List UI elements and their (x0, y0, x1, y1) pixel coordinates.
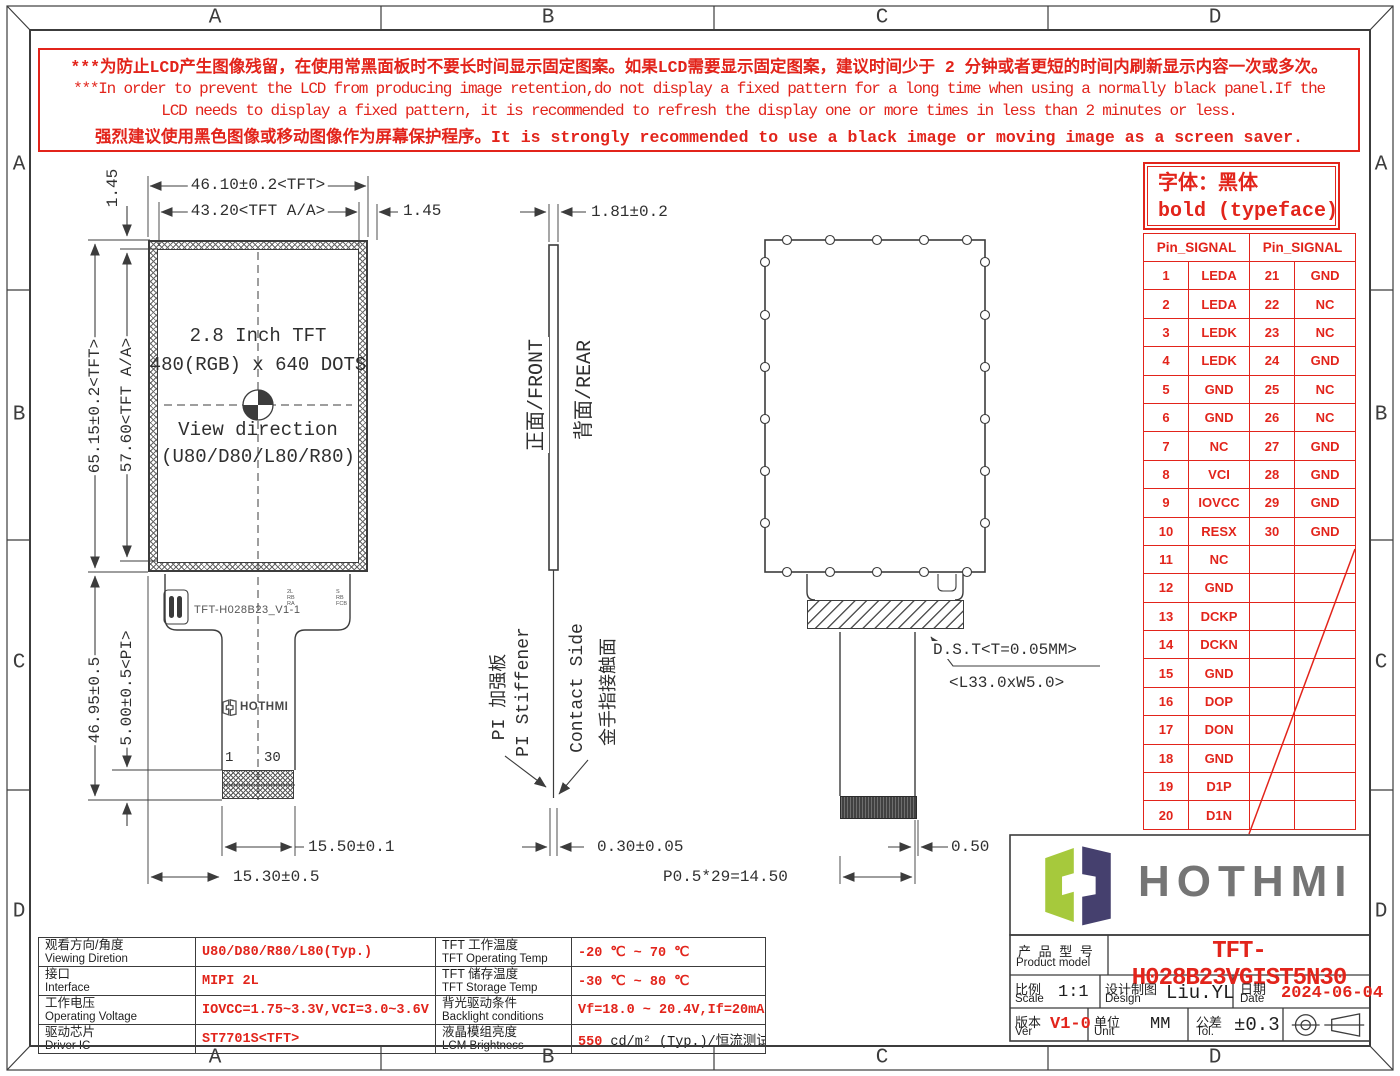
pin-number-right (1250, 574, 1295, 602)
front-view-panel (148, 240, 368, 572)
typeface-note-box: 字体：黑体 bold (typeface) (1143, 162, 1340, 230)
pin-signal-right (1295, 687, 1356, 715)
pin-number-left: 10 (1144, 517, 1189, 545)
pin-number-right (1250, 716, 1295, 744)
grid-label-right-c: C (1375, 652, 1388, 675)
pin-number-right: 28 (1250, 460, 1295, 488)
pin-number-left: 6 (1144, 403, 1189, 431)
spec-label-1: 接口 Interface (39, 967, 196, 996)
pin-table-row: 7 NC 27 GND (1144, 432, 1356, 460)
grid-label-top-d: D (1209, 7, 1222, 30)
pin-signal-left: GND (1189, 403, 1250, 431)
image-retention-warning-box: ***为防止LCD产生图像残留，在使用常黑面板时不要长时间显示固定图案。如果LC… (38, 48, 1360, 152)
pin-signal-left: GND (1189, 744, 1250, 772)
pin-number-left: 20 (1144, 801, 1189, 829)
pin-number-right: 27 (1250, 432, 1295, 460)
spec-label-1: 工作电压 Operating Voltage (39, 996, 196, 1025)
pin-table-row: 19 D1P (1144, 773, 1356, 801)
mini-hothmi-icon (222, 699, 237, 716)
pin-number-left: 13 (1144, 602, 1189, 630)
pin-table-row: 10 RESX 30 GND (1144, 517, 1356, 545)
pin-table-row: 9 IOVCC 29 GND (1144, 489, 1356, 517)
pin-table-row: 6 GND 26 NC (1144, 403, 1356, 431)
dim-fpc-thickness: 0.30±0.05 (594, 838, 686, 856)
typeface-note-inner: 字体：黑体 bold (typeface) (1147, 166, 1336, 226)
dim-height-tft: 65.15±0.2<TFT> (86, 337, 104, 475)
contact-side-label-en: Contact Side (568, 621, 588, 755)
pin-signal-right (1295, 659, 1356, 687)
rear-stiffener-hatched (807, 600, 964, 629)
pin-table-row: 16 DOP (1144, 687, 1356, 715)
dim-pin-pitch: P0.5*29=14.50 (660, 868, 791, 886)
front-view-active-area (157, 249, 359, 563)
pin-number-left: 9 (1144, 489, 1189, 517)
grid-label-left-d: D (13, 901, 26, 924)
pin-signal-right: NC (1295, 375, 1356, 403)
dim-connector-offset: 15.30±0.5 (230, 868, 322, 886)
spec-label-1-en: Operating Voltage (45, 1011, 189, 1024)
pin-signal-left: LEDA (1189, 262, 1250, 290)
pin-signal-left: NC (1189, 432, 1250, 460)
spec-label-2-en: TFT Storage Temp (442, 982, 565, 995)
pin-table-row: 14 DCKN (1144, 631, 1356, 659)
pin-number-left: 3 (1144, 318, 1189, 346)
pin-table-header-right: Pin_SIGNAL (1250, 234, 1356, 262)
pin-signal-right (1295, 801, 1356, 829)
pin-table-row: 15 GND (1144, 659, 1356, 687)
grid-label-left-b: B (13, 404, 26, 427)
dim-pi-stiffener: 5.00±0.5<PI> (118, 628, 136, 747)
version-value: V1-0 (1050, 1015, 1091, 1034)
spec-value-1: U80/D80/R80/L80(Typ.) (196, 938, 436, 967)
dim-thickness: 1.81±0.2 (588, 203, 671, 221)
pin-number-right: 26 (1250, 403, 1295, 431)
side-rear-label: 背面/REAR (567, 338, 597, 442)
tolerance-label-en: Tol. (1196, 1026, 1214, 1038)
pin-number-left: 14 (1144, 631, 1189, 659)
spec-label-1-en: Interface (45, 982, 189, 995)
spec-value-2: -30 ℃ ~ 80 ℃ (572, 967, 766, 996)
spec-label-1-cn: 驱动芯片 (45, 1026, 189, 1040)
typeface-note-en: bold (typeface) (1158, 198, 1325, 225)
pin-table-row: 1 LEDA 21 GND (1144, 262, 1356, 290)
dim-margin-right: 1.45 (400, 202, 444, 220)
pin-signal-right: GND (1295, 262, 1356, 290)
design-label-en: Design (1105, 993, 1141, 1005)
pin-signal-left: LEDK (1189, 318, 1250, 346)
spec-label-1-en: Viewing Diretion (45, 953, 189, 966)
panel-resolution-label: 480(RGB) x 640 DOTS (148, 354, 368, 376)
stiffener-size-label: <L33.0xW5.0> (946, 674, 1067, 692)
pin-number-right: 30 (1250, 517, 1295, 545)
pin-signal-right (1295, 716, 1356, 744)
grid-label-bottom-c: C (876, 1047, 889, 1070)
grid-label-top-a: A (209, 7, 222, 30)
warning-line-en-2: LCD needs to display a fixed pattern, it… (161, 102, 1236, 120)
pin-signal-table: Pin_SIGNAL Pin_SIGNAL 1 LEDA 21 GND 2 LE… (1143, 233, 1356, 830)
pin-signal-right: NC (1295, 403, 1356, 431)
pin-number-right (1250, 659, 1295, 687)
pin-signal-left: DCKN (1189, 631, 1250, 659)
pin-signal-right (1295, 773, 1356, 801)
pin-number-right (1250, 801, 1295, 829)
pin-table-row: 12 GND (1144, 574, 1356, 602)
hothmi-logo-icon (1040, 843, 1116, 927)
spec-row: 工作电压 Operating Voltage IOVCC=1.75~3.3V,V… (39, 996, 766, 1025)
pin-number-left: 7 (1144, 432, 1189, 460)
spec-label-2: TFT 工作温度 TFT Operating Temp (436, 938, 572, 967)
grid-label-right-a: A (1375, 154, 1388, 177)
spec-label-1-cn: 观看方向/角度 (45, 939, 189, 953)
dst-label: D.S.T<T=0.05MM> (930, 641, 1080, 659)
warning-line-cn-2: 强烈建议使用黑色图像或移动图像作为屏幕保护程序。It is strongly r… (95, 123, 1303, 147)
spec-label-2-en: TFT Operating Temp (442, 953, 565, 966)
view-direction-values: (U80/D80/L80/R80) (148, 446, 368, 468)
pin-signal-left: GND (1189, 574, 1250, 602)
pin-signal-left: DON (1189, 716, 1250, 744)
pin-number-right (1250, 545, 1295, 573)
spec-label-2-cn: TFT 储存温度 (442, 968, 565, 982)
pin-number-right (1250, 631, 1295, 659)
grid-label-bottom-a: A (209, 1047, 222, 1070)
pin-number-right: 22 (1250, 290, 1295, 318)
pin-number-right (1250, 744, 1295, 772)
pin-number-left: 11 (1144, 545, 1189, 573)
spec-label-2: TFT 储存温度 TFT Storage Temp (436, 967, 572, 996)
grid-label-bottom-d: D (1209, 1047, 1222, 1070)
hothmi-logo-block: HOTHMI (1010, 835, 1370, 935)
spec-value-1: MIPI 2L (196, 967, 436, 996)
engineering-drawing-sheet: A B C D A B C D A B C D A B C D ***为防止LC… (0, 0, 1400, 1076)
pin-signal-right (1295, 744, 1356, 772)
view-direction-label: View direction (148, 419, 368, 441)
pin-number-right: 25 (1250, 375, 1295, 403)
pin-table-row: 17 DON (1144, 716, 1356, 744)
spec-row: 驱动芯片 Driver IC ST7701S<TFT> 液晶模组亮度 LCM B… (39, 1025, 766, 1054)
grid-label-top-c: C (876, 7, 889, 30)
pin-number-left: 5 (1144, 375, 1189, 403)
spec-label-2: 背光驱动条件 Backlight conditions (436, 996, 572, 1025)
pin-number-left: 12 (1144, 574, 1189, 602)
pin-table-row: 8 VCI 28 GND (1144, 460, 1356, 488)
pin-signal-left: GND (1189, 659, 1250, 687)
pin-number-right: 29 (1250, 489, 1295, 517)
spec-label-2-cn: 背光驱动条件 (442, 997, 565, 1011)
pin-table-row: 20 D1N (1144, 801, 1356, 829)
side-view-backlight-edge (550, 548, 556, 566)
pin-signal-right: GND (1295, 460, 1356, 488)
spec-value-1: IOVCC=1.75~3.3V,VCI=3.0~3.6V (196, 996, 436, 1025)
pin-signal-left: LEDA (1189, 290, 1250, 318)
spec-label-2-cn: 液晶模组亮度 (442, 1026, 565, 1040)
spec-row: 观看方向/角度 Viewing Diretion U80/D80/R80/L80… (39, 938, 766, 967)
pin-signal-right: GND (1295, 489, 1356, 517)
pin-number-right (1250, 602, 1295, 630)
pin-signal-left: IOVCC (1189, 489, 1250, 517)
pin-table-row: 3 LEDK 23 NC (1144, 318, 1356, 346)
pin-signal-right (1295, 631, 1356, 659)
grid-label-left-a: A (13, 154, 26, 177)
pin-signal-left: D1N (1189, 801, 1250, 829)
fpc-tiny-mark-1: 2L RB RA (287, 589, 295, 607)
dim-connector-width: 15.50±0.1 (305, 838, 397, 856)
unit-value: MM (1150, 1015, 1170, 1034)
side-front-label: 正面/FRONT (519, 337, 549, 453)
version-label-en: Ver (1015, 1026, 1032, 1038)
panel-size-label: 2.8 Inch TFT (148, 325, 368, 347)
fpc-mini-logo: HOTHMI (222, 694, 300, 720)
pin-signal-right: NC (1295, 290, 1356, 318)
spec-label-2-cn: TFT 工作温度 (442, 939, 565, 953)
spec-label-1: 观看方向/角度 Viewing Diretion (39, 938, 196, 967)
pin-number-right (1250, 773, 1295, 801)
spec-value-2: 550 cd/m² (Typ.)/恒流测试 (572, 1025, 766, 1054)
tolerance-value: ±0.3 (1234, 1014, 1280, 1036)
fpc-pin30-label: 30 (264, 750, 281, 766)
designer-value: Liu.YL (1166, 982, 1234, 1004)
dim-edge-gap: 0.50 (948, 838, 992, 856)
pin-number-right: 23 (1250, 318, 1295, 346)
fpc-pin1-label: 1 (225, 750, 233, 766)
spec-label-1-en: Driver IC (45, 1040, 189, 1053)
pi-stiffener-label-en: PI Stiffener (514, 625, 534, 759)
pin-number-right: 21 (1250, 262, 1295, 290)
pin-table-row: 11 NC (1144, 545, 1356, 573)
pin-table-row: 13 DCKP (1144, 602, 1356, 630)
grid-label-right-d: D (1375, 901, 1388, 924)
spec-value-2: Vf=18.0 ~ 20.4V,If=20mA (572, 996, 766, 1025)
spec-label-1: 驱动芯片 Driver IC (39, 1025, 196, 1054)
hothmi-logo-text: HOTHMI (1138, 857, 1354, 907)
pin-number-left: 1 (1144, 262, 1189, 290)
fpc-tiny-mark-2: S RB FCB (336, 589, 347, 607)
pin-signal-right (1295, 602, 1356, 630)
pin-number-left: 17 (1144, 716, 1189, 744)
rear-solder-notches (761, 236, 990, 577)
pin-signal-right: NC (1295, 318, 1356, 346)
pin-signal-right (1295, 545, 1356, 573)
mini-hothmi-text: HOTHMI (240, 701, 288, 713)
spec-label-1-cn: 接口 (45, 968, 189, 982)
fpc-gold-finger-connector (222, 770, 294, 799)
pin-table-header-row: Pin_SIGNAL Pin_SIGNAL (1144, 234, 1356, 262)
pin-signal-left: VCI (1189, 460, 1250, 488)
pin-table-row: 2 LEDA 22 NC (1144, 290, 1356, 318)
typeface-note-cn: 字体：黑体 (1158, 171, 1325, 198)
pin-signal-left: DOP (1189, 687, 1250, 715)
unit-label-en: Unit (1094, 1026, 1114, 1038)
scale-label-en: Scale (1015, 993, 1044, 1005)
rear-gold-finger-connector (840, 796, 917, 819)
pin-signal-left: NC (1189, 545, 1250, 573)
grid-label-bottom-b: B (542, 1047, 555, 1070)
projection-symbol (1290, 1012, 1366, 1038)
date-value: 2024-06-04 (1281, 984, 1383, 1003)
pin-signal-right: GND (1295, 347, 1356, 375)
pin-signal-right: GND (1295, 517, 1356, 545)
spec-value-1: ST7701S<TFT> (196, 1025, 436, 1054)
pin-table-row: 4 LEDK 24 GND (1144, 347, 1356, 375)
pin-signal-right: GND (1295, 432, 1356, 460)
pin-signal-left: LEDK (1189, 347, 1250, 375)
pin-signal-left: DCKP (1189, 602, 1250, 630)
pin-table-row: 18 GND (1144, 744, 1356, 772)
product-model-label-en: Product model (1016, 957, 1090, 969)
pin-signal-right (1295, 574, 1356, 602)
spec-row: 接口 Interface MIPI 2L TFT 储存温度 TFT Storag… (39, 967, 766, 996)
pin-signal-left: GND (1189, 375, 1250, 403)
pin-signal-left: RESX (1189, 517, 1250, 545)
pi-stiffener-label-cn: PI 加强板 (484, 652, 510, 742)
spec-label-2-en: Backlight conditions (442, 1011, 565, 1024)
pin-table-row: 5 GND 25 NC (1144, 375, 1356, 403)
spec-table: 观看方向/角度 Viewing Diretion U80/D80/R80/L80… (38, 937, 766, 1054)
warning-line-cn-1: ***为防止LCD产生图像残留，在使用常黑面板时不要长时间显示固定图案。如果LC… (70, 53, 1327, 77)
pin-table-header-left: Pin_SIGNAL (1144, 234, 1250, 262)
fpc-model-label: TFT-H028B23_V1-1 (194, 604, 300, 616)
dim-width-tft: 46.10±0.2<TFT> (188, 176, 328, 194)
warning-line-en-1: ***In order to prevent the LCD from prod… (73, 80, 1325, 98)
dim-width-aa: 43.20<TFT A/A> (188, 202, 328, 220)
spec-label-1-cn: 工作电压 (45, 997, 189, 1011)
grid-label-left-c: C (13, 652, 26, 675)
pin-signal-left: D1P (1189, 773, 1250, 801)
dim-height-aa: 57.60<TFT A/A> (118, 336, 136, 474)
pin-number-left: 16 (1144, 687, 1189, 715)
pin-number-left: 4 (1144, 347, 1189, 375)
pin-number-left: 2 (1144, 290, 1189, 318)
dim-margin-top: 1.45 (104, 167, 122, 209)
contact-side-label-cn: 金手指接触面 (594, 636, 620, 748)
grid-label-right-b: B (1375, 404, 1388, 427)
pin-number-left: 15 (1144, 659, 1189, 687)
date-label-en: Date (1240, 993, 1264, 1005)
pin-number-left: 8 (1144, 460, 1189, 488)
pin-number-right (1250, 687, 1295, 715)
spec-value-2: -20 ℃ ~ 70 ℃ (572, 938, 766, 967)
scale-value: 1:1 (1058, 983, 1089, 1002)
pin-number-right: 24 (1250, 347, 1295, 375)
pin-number-left: 18 (1144, 744, 1189, 772)
grid-label-top-b: B (542, 7, 555, 30)
dim-tail-length: 46.95±0.5 (86, 655, 104, 745)
pin-number-left: 19 (1144, 773, 1189, 801)
